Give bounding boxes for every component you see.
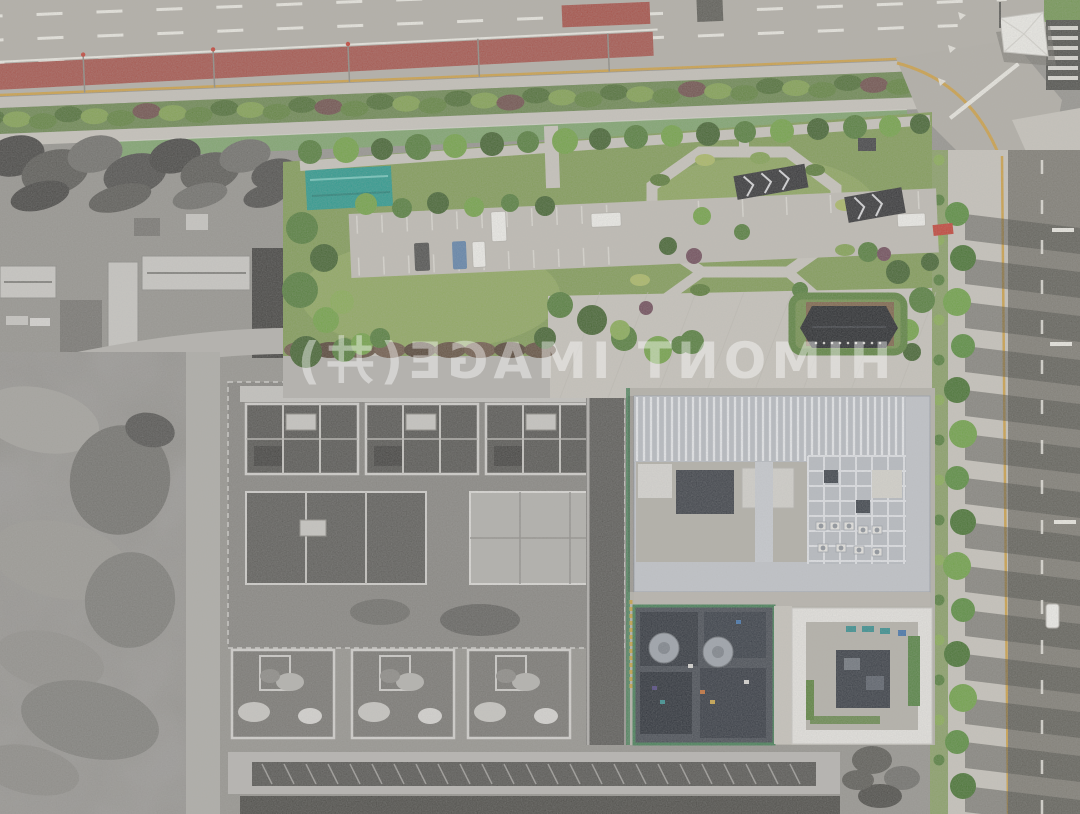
scene-canvas: [0, 0, 1080, 814]
aerial-photo: HIMONT IMAGE(井): [0, 0, 1080, 814]
film-grain: [0, 0, 1080, 814]
